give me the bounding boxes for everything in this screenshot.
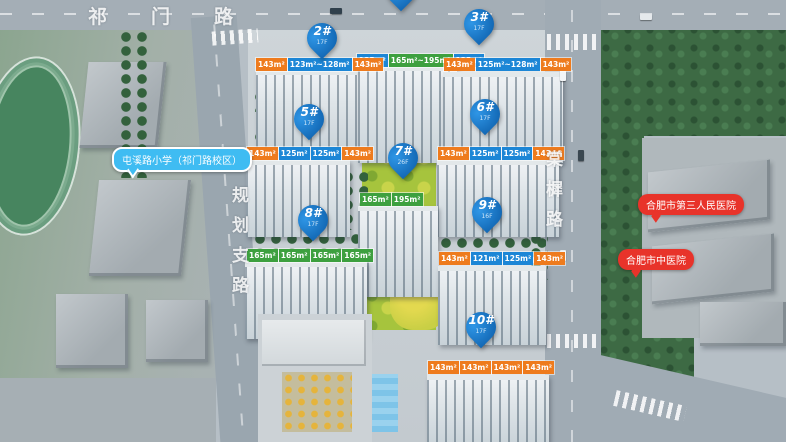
- road-name-east: 棠樨路: [540, 150, 565, 240]
- poi-school-bubble[interactable]: 屯溪路小学（祁门路校区）: [112, 147, 252, 172]
- car: [560, 70, 566, 81]
- pin-floors: 16F: [470, 213, 504, 220]
- unit-size-label: 143m²: [541, 58, 572, 71]
- unit-size-label: 143m²: [438, 147, 469, 160]
- pin-building-6[interactable]: 6# 17F: [468, 98, 502, 144]
- school-building: [89, 180, 191, 276]
- unit-labels-building-7: 165m² 195m²: [360, 193, 423, 206]
- unit-size-label: 143m²: [428, 361, 459, 374]
- pin-floors: 17F: [296, 221, 330, 228]
- unit-size-label: 125m²: [470, 147, 501, 160]
- unit-size-label: 195m²: [392, 193, 423, 206]
- poi-hospital-3rd-bubble[interactable]: 合肥市第三人民医院: [638, 194, 744, 215]
- pin-building-2[interactable]: 2# 17F: [305, 22, 339, 68]
- pin-number: 3#: [462, 11, 496, 24]
- hospital-building: [700, 302, 786, 346]
- car: [330, 8, 342, 14]
- school-building: [56, 294, 128, 368]
- unit-size-label: 143m²: [492, 361, 523, 374]
- right-tree-strip: [598, 130, 644, 344]
- unit-size-label: 143m²: [460, 361, 491, 374]
- unit-size-label: 165m²: [279, 249, 310, 262]
- pin-building-1-partial[interactable]: [384, 0, 418, 20]
- poi-hospital-tcm-bubble[interactable]: 合肥市中医院: [618, 249, 694, 270]
- pin-building-5[interactable]: 5# 17F: [292, 103, 326, 149]
- pin-number: 8#: [296, 207, 330, 220]
- unit-size-label: 125m²~128m²: [476, 58, 540, 71]
- unit-size-label: 143m²: [256, 58, 287, 71]
- unit-size-label: 143m²: [439, 252, 470, 265]
- car: [640, 14, 652, 20]
- school-building: [146, 300, 208, 362]
- pin-floors: 17F: [462, 25, 496, 32]
- kindergarten-playground: [282, 372, 352, 432]
- road-name-north: 祁门路: [88, 2, 277, 29]
- pin-building-9[interactable]: 9# 16F: [470, 196, 504, 242]
- unit-size-label: 121m²: [471, 252, 502, 265]
- aerial-masterplan: 125m² 165m²~195m² 125m² 143m² 123m²~128m…: [0, 0, 786, 442]
- pin-floors: 26F: [386, 159, 420, 166]
- pin-building-7[interactable]: 7# 26F: [386, 142, 420, 188]
- tower-10: [427, 375, 549, 442]
- unit-size-label: 125m²: [503, 252, 534, 265]
- pin-building-8[interactable]: 8# 17F: [296, 204, 330, 250]
- unit-labels-building-10: 143m² 143m² 143m² 143m²: [428, 361, 554, 374]
- unit-size-label: 143m²: [444, 58, 475, 71]
- car: [578, 150, 584, 161]
- unit-size-label: 165m²: [247, 249, 278, 262]
- unit-size-label: 143m²: [534, 252, 565, 265]
- unit-size-label: 165m²: [311, 249, 342, 262]
- unit-labels-building-9: 143m² 121m² 125m² 143m²: [439, 252, 565, 265]
- pin-number: 5#: [292, 106, 326, 119]
- unit-labels-building-3: 143m² 125m²~128m² 143m²: [444, 58, 571, 71]
- unit-size-label: 125m²: [502, 147, 533, 160]
- glass-canopy: [372, 374, 398, 432]
- top-right-trees: [600, 24, 786, 136]
- pin-number: 9#: [470, 199, 504, 212]
- road-name-west: 规划支路: [226, 186, 251, 306]
- unit-size-label: 165m²: [360, 193, 391, 206]
- pin-number: 7#: [386, 145, 420, 158]
- crosswalk: [547, 334, 599, 348]
- pin-floors: 17F: [468, 115, 502, 122]
- crosswalk: [547, 34, 599, 50]
- pin-number: 6#: [468, 101, 502, 114]
- pin-floors: 17F: [305, 39, 339, 46]
- bottom-left-ground: [0, 378, 216, 442]
- unit-size-label: 143m²: [523, 361, 554, 374]
- unit-size-label: 165m²~195m²: [389, 54, 453, 67]
- unit-size-label: 165m²: [342, 249, 373, 262]
- pin-floors: 17F: [464, 328, 498, 335]
- pin-floors: 17F: [292, 120, 326, 127]
- unit-labels-building-8: 165m² 165m² 165m² 165m²: [247, 249, 373, 262]
- pin-building-3[interactable]: 3# 17F: [462, 8, 496, 54]
- pin-number: 2#: [305, 25, 339, 38]
- unit-size-label: 143m²: [353, 58, 384, 71]
- unit-size-label: 143m²: [342, 147, 373, 160]
- pin-number: 10#: [464, 314, 498, 327]
- pin-building-10[interactable]: 10# 17F: [464, 311, 498, 357]
- kindergarten-roof: [262, 320, 366, 366]
